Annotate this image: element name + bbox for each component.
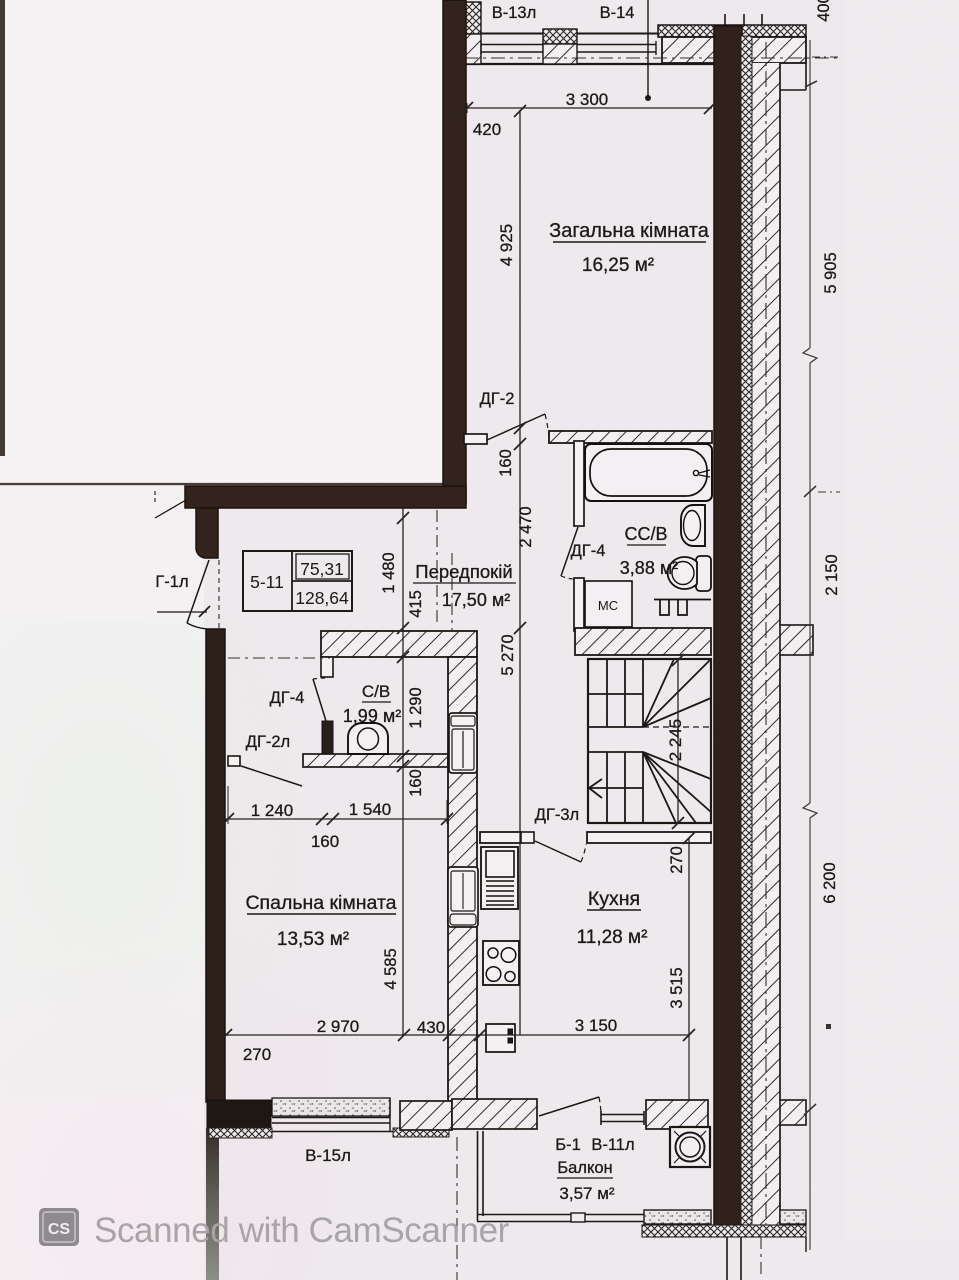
svg-text:430: 430 [417, 1018, 445, 1037]
svg-text:ДГ-4: ДГ-4 [571, 542, 606, 560]
svg-text:4 925: 4 925 [497, 224, 516, 267]
svg-text:1 540: 1 540 [349, 800, 392, 819]
svg-text:5 905: 5 905 [822, 252, 840, 293]
svg-text:4 585: 4 585 [382, 948, 400, 989]
svg-text:3 300: 3 300 [566, 90, 609, 109]
svg-text:160: 160 [497, 449, 515, 477]
svg-text:3 515: 3 515 [668, 967, 686, 1008]
svg-text:В-13л: В-13л [492, 4, 536, 22]
svg-text:400: 400 [815, 0, 833, 22]
svg-text:160: 160 [311, 832, 339, 851]
svg-text:2 470: 2 470 [517, 506, 535, 547]
svg-text:ДГ-2: ДГ-2 [480, 390, 515, 408]
svg-text:3 150: 3 150 [575, 1016, 618, 1035]
svg-text:3,88 м²: 3,88 м² [620, 558, 678, 578]
svg-text:Передпокій: Передпокій [415, 561, 512, 582]
svg-text:1 480: 1 480 [380, 552, 398, 593]
svg-text:17,50 м²: 17,50 м² [442, 590, 510, 610]
svg-text:160: 160 [407, 769, 425, 797]
svg-text:1,99 м²: 1,99 м² [343, 706, 401, 726]
svg-text:3,57 м²: 3,57 м² [559, 1184, 614, 1203]
svg-text:2 970: 2 970 [317, 1017, 360, 1036]
svg-text:МС: МС [598, 598, 618, 613]
svg-text:415: 415 [407, 590, 425, 618]
svg-text:420: 420 [473, 120, 501, 139]
svg-text:75,31: 75,31 [300, 559, 344, 579]
svg-text:Кухня: Кухня [588, 888, 640, 910]
svg-text:270: 270 [668, 846, 686, 874]
svg-text:ДГ-2л: ДГ-2л [246, 733, 290, 751]
svg-text:Балкон: Балкон [557, 1159, 612, 1177]
svg-text:Scanned with CamScanner: Scanned with CamScanner [94, 1211, 510, 1250]
svg-text:С/В: С/В [362, 682, 390, 701]
svg-text:1 290: 1 290 [407, 687, 425, 728]
svg-text:Спальна кімната: Спальна кімната [245, 892, 396, 914]
svg-text:13,53 м²: 13,53 м² [277, 929, 349, 950]
svg-text:5 270: 5 270 [499, 634, 517, 675]
svg-text:В-15л: В-15л [305, 1146, 351, 1165]
svg-text:2 245: 2 245 [666, 719, 685, 762]
svg-text:ДГ-4: ДГ-4 [270, 689, 305, 707]
svg-text:11,28 м²: 11,28 м² [577, 927, 648, 948]
svg-text:В-14: В-14 [600, 4, 635, 22]
svg-text:Г-1л: Г-1л [155, 573, 188, 591]
svg-text:В-11л: В-11л [591, 1136, 634, 1154]
svg-text:1 240: 1 240 [251, 801, 294, 820]
svg-text:128,64: 128,64 [295, 588, 349, 608]
svg-text:6 200: 6 200 [821, 862, 839, 903]
svg-text:Б-1: Б-1 [555, 1136, 581, 1154]
svg-text:СС/В: СС/В [624, 524, 667, 544]
svg-text:ДГ-3л: ДГ-3л [535, 806, 579, 824]
svg-text:Загальна кімната: Загальна кімната [549, 220, 710, 242]
svg-text:16,25 м²: 16,25 м² [582, 255, 654, 276]
svg-text:2 150: 2 150 [823, 554, 841, 595]
svg-text:270: 270 [243, 1045, 271, 1064]
svg-text:5-11: 5-11 [250, 572, 284, 592]
svg-text:CS: CS [48, 1221, 71, 1238]
